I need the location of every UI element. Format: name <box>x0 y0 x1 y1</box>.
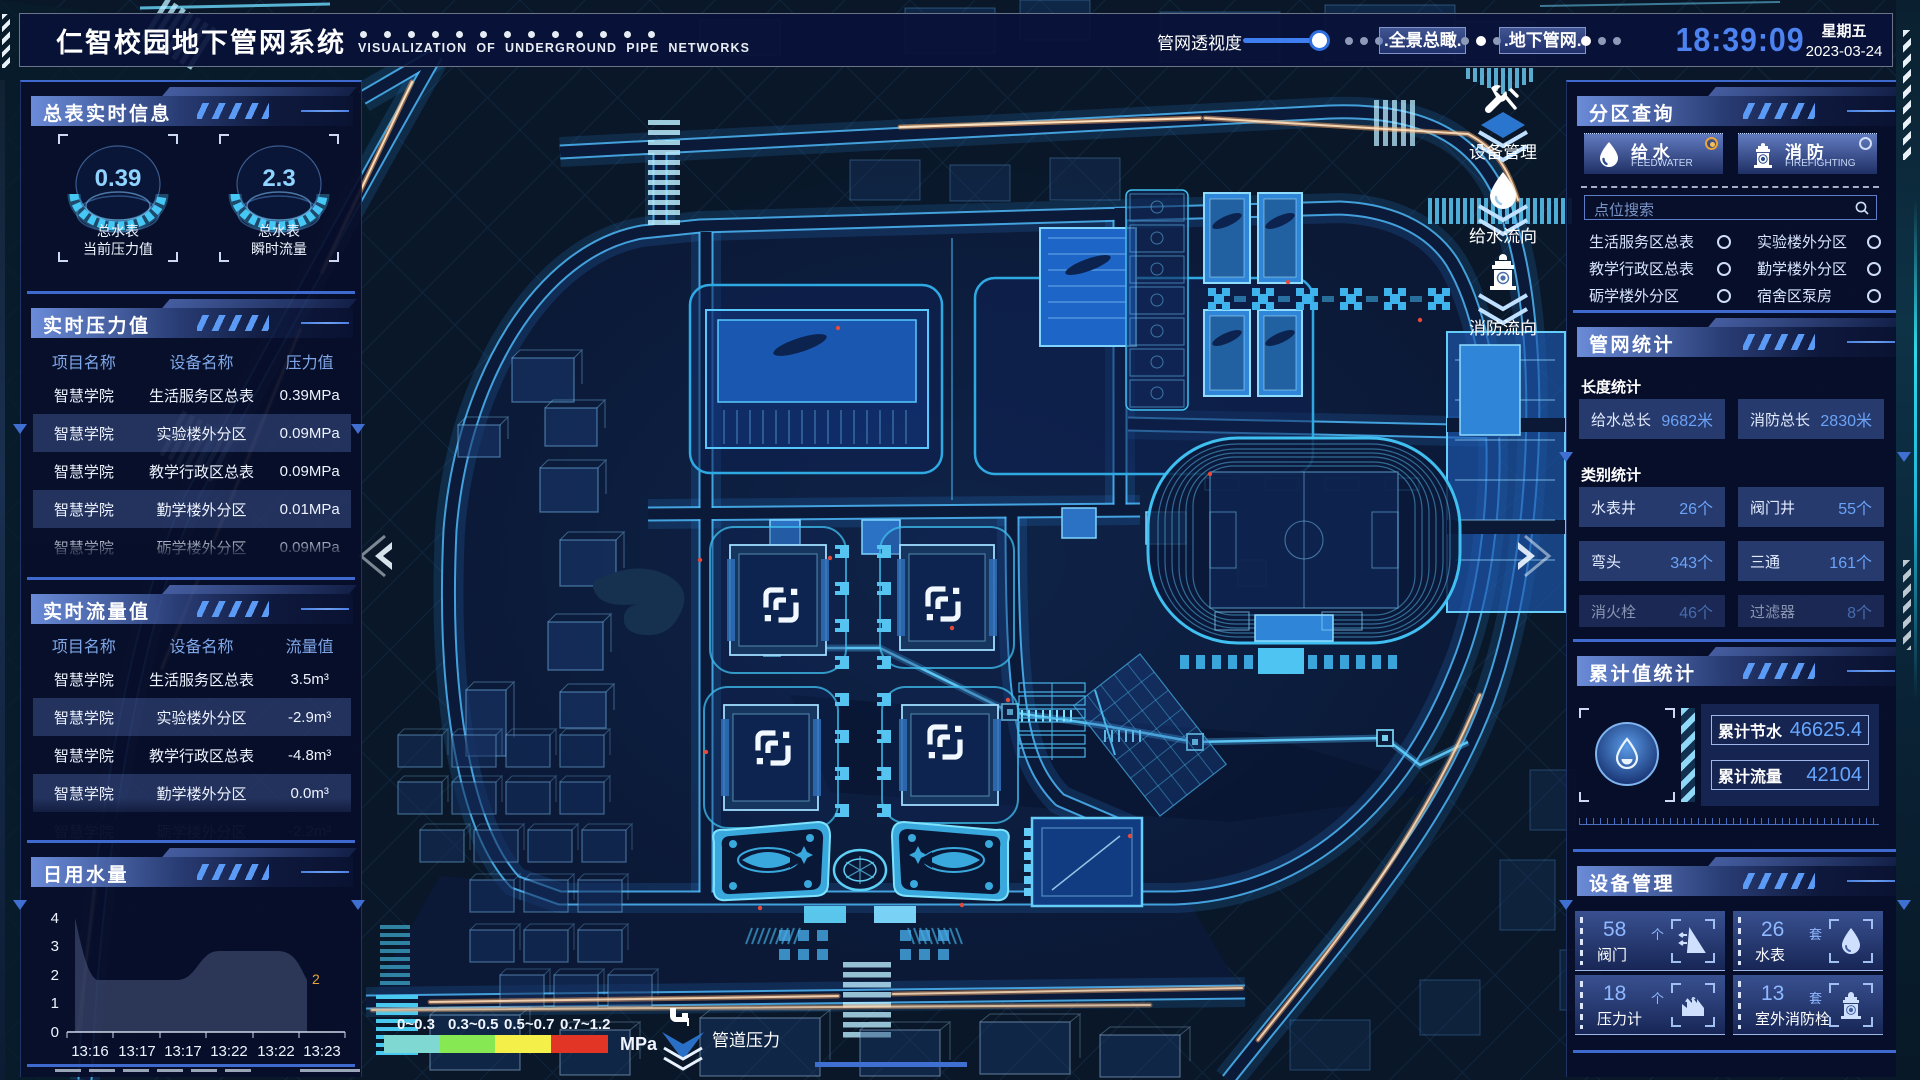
svg-text:给水流向: 给水流向 <box>1469 227 1537 246</box>
svg-text:2: 2 <box>312 971 320 987</box>
svg-text:13:16: 13:16 <box>71 1043 109 1060</box>
svg-text:13:23: 13:23 <box>303 1043 341 1060</box>
svg-text:总水表: 总水表 <box>97 223 139 239</box>
svg-text:管道压力: 管道压力 <box>712 1031 780 1050</box>
svg-text:1: 1 <box>51 995 59 1012</box>
svg-text:0.5~0.7: 0.5~0.7 <box>504 1016 554 1033</box>
svg-text:瞬时流量: 瞬时流量 <box>251 241 307 257</box>
svg-text:设备管理: 设备管理 <box>1469 143 1537 162</box>
svg-text:13:22: 13:22 <box>257 1043 295 1060</box>
svg-text:0: 0 <box>51 1024 59 1041</box>
svg-text:0.39: 0.39 <box>95 165 142 192</box>
svg-text:13:17: 13:17 <box>118 1043 156 1060</box>
svg-text:0.3~0.5: 0.3~0.5 <box>448 1016 498 1033</box>
svg-text:13:17: 13:17 <box>164 1043 202 1060</box>
svg-text:总水表: 总水表 <box>258 223 300 239</box>
svg-text:4: 4 <box>51 910 59 927</box>
svg-text:2: 2 <box>51 967 59 984</box>
svg-text:13:22: 13:22 <box>210 1043 248 1060</box>
svg-text:MPa: MPa <box>620 1034 658 1054</box>
svg-text:3: 3 <box>51 938 59 955</box>
svg-text:2.3: 2.3 <box>262 165 295 192</box>
svg-text:消防流向: 消防流向 <box>1469 319 1537 338</box>
svg-text:0.7~1.2: 0.7~1.2 <box>560 1016 610 1033</box>
svg-text:当前压力值: 当前压力值 <box>83 241 153 257</box>
svg-text:0~0.3: 0~0.3 <box>397 1016 435 1033</box>
